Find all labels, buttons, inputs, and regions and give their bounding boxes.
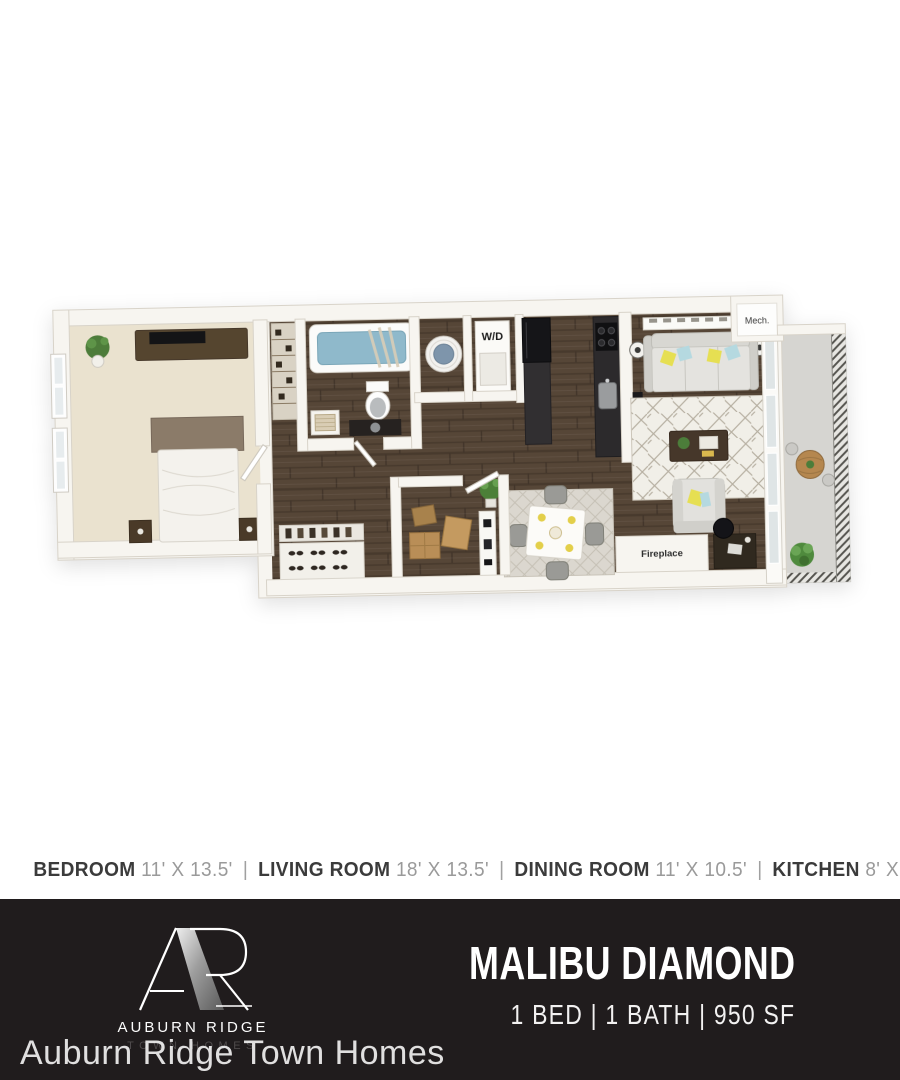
dining-chair [585,523,603,545]
room-size: 11' X 10.5' [655,858,747,881]
floor-plan: W/D [46,280,853,642]
room-name: LIVING ROOM [258,858,390,881]
room-name: DINING ROOM [514,858,649,881]
mech-label: Mech. [745,315,770,326]
room-name: BEDROOM [33,858,135,881]
water-heater [425,336,462,373]
plan-name: MALIBU DIAMOND [469,936,795,990]
separator: | [243,858,248,881]
separator: | [499,858,504,881]
washer-dryer-unit: W/D [475,321,510,392]
plan-specs: 1 BED | 1 BATH | 950 SF [510,999,795,1031]
fireplace-label: Fireplace [641,548,683,560]
flyer-page: W/D [0,0,900,1080]
room-name: KITCHEN [772,858,859,881]
kitchen-sink [598,382,617,408]
fireplace: Fireplace [616,535,709,573]
mech-closet: Mech. [731,295,784,342]
plan-group: W/D [50,294,851,603]
dimensions-bar: BEDROOM11' X 13.5'|LIVING ROOM18' X 13.5… [0,858,900,882]
ar-monogram-icon [140,928,252,1010]
room-size: 18' X 13.5' [396,858,489,881]
shoe-closet [279,524,364,580]
tv [149,331,205,344]
auburn-ridge-logo [128,926,258,1012]
dining-chair [546,562,568,580]
separator: | [757,858,762,881]
dining-table [526,506,586,561]
coffee-table [669,430,728,461]
moving-box [441,516,471,550]
entry-console [479,511,496,575]
dining-chair [509,524,527,546]
moving-box [412,505,437,527]
office-chair [713,518,733,538]
dining-chair [545,486,567,504]
cooktop [595,322,618,350]
washer-dryer-label: W/D [482,331,504,343]
bedroom-dresser [135,328,248,360]
watermark: Auburn Ridge Town Homes [20,1034,445,1073]
room-size: 8' X 8' [865,858,900,881]
room-size: 11' X 13.5' [141,858,233,881]
hall-closet-shelves [271,323,297,419]
